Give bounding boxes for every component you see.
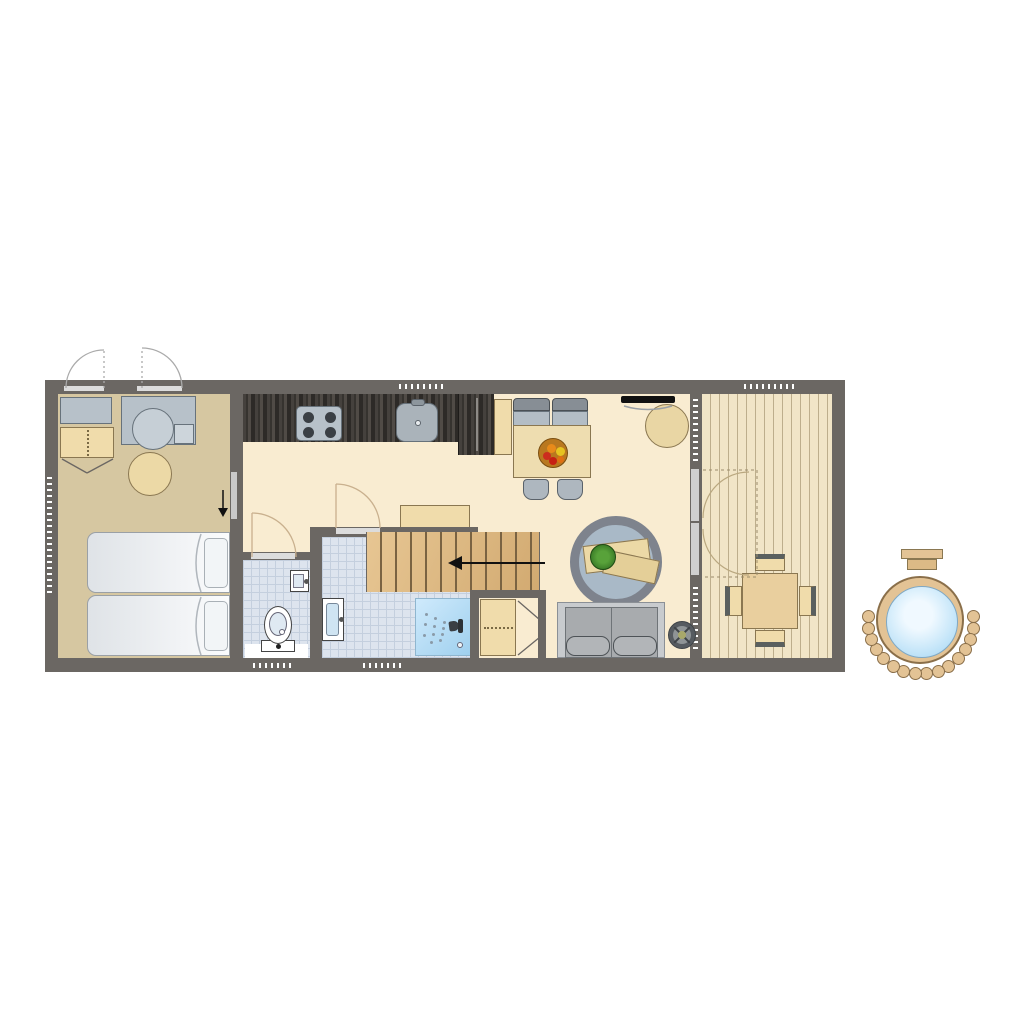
utility-sink [174, 424, 194, 444]
hot-tub-water [886, 586, 958, 658]
hot-tub-bead [862, 610, 875, 623]
exterior-door-opening [64, 386, 104, 391]
shower-handle [458, 619, 463, 633]
hot-tub-step-upper [901, 549, 943, 559]
wardrobe-rail [87, 430, 89, 456]
burner [325, 412, 336, 423]
bench-back-cushion [552, 398, 588, 411]
burner [325, 427, 336, 438]
bench-back-cushion [513, 398, 550, 411]
drain [415, 420, 421, 426]
cabinet-divider [476, 398, 478, 451]
round-side-table [645, 404, 689, 448]
sofa [557, 602, 665, 658]
pillow-2 [204, 601, 228, 651]
sofa-divider [611, 607, 612, 658]
outdoor-chair [799, 586, 816, 616]
bedroom-wardrobe [60, 427, 114, 458]
fruit [556, 447, 565, 456]
wall-bottom [45, 658, 845, 672]
stove-center [678, 631, 686, 639]
tv [621, 396, 675, 403]
outdoor-chair [755, 630, 785, 647]
window-marker-dots [363, 663, 405, 668]
wc-door-opening [251, 553, 295, 559]
exterior-door-opening [137, 386, 182, 391]
shower-drain [457, 642, 463, 648]
toilet [260, 604, 296, 658]
wood-stove [668, 621, 696, 649]
hot-tub-bead [862, 622, 875, 635]
washbasin [322, 598, 344, 641]
fruit-bowl [538, 438, 568, 468]
washing-machine [121, 396, 196, 445]
washbasin-inner [326, 603, 339, 636]
wall-bathroom-right [470, 590, 479, 658]
hall-cabinet [400, 505, 470, 529]
bedroom-stool [128, 452, 172, 496]
tall-cabinet [458, 394, 494, 455]
burner [303, 427, 314, 438]
sofa-cushion [613, 636, 657, 656]
fruit [549, 457, 557, 465]
wc-hand-basin [290, 570, 309, 592]
plant [590, 544, 616, 570]
toilet-button [276, 644, 281, 649]
kitchen-sink [396, 403, 438, 442]
shower [415, 598, 471, 656]
hot-tub-bead [967, 610, 980, 623]
hot-tub-bead [932, 665, 945, 678]
basin-tap [304, 579, 309, 584]
wall-bedroom-hall [230, 394, 243, 658]
hot-tub-bead [909, 667, 922, 680]
wall-niche-right [538, 590, 546, 658]
basin-inner [293, 574, 304, 588]
window-marker-dots [47, 477, 52, 593]
hot-tub-step-lower [907, 559, 937, 570]
dining-chair [557, 479, 583, 500]
wall-niche-top [470, 590, 546, 598]
sofa-cushion [566, 636, 610, 656]
hot-tub-bead [865, 633, 878, 646]
dining-bench-side [494, 399, 512, 455]
stove [296, 406, 342, 441]
bedroom-sliding-door [231, 472, 237, 519]
outdoor-chair [725, 586, 742, 616]
niche-closet [480, 599, 516, 656]
window-marker-dots [399, 384, 447, 389]
toilet-drain [279, 629, 285, 635]
hot-tub-bead [920, 667, 933, 680]
toilet-bowl [264, 606, 292, 644]
washing-machine-drum [132, 408, 174, 450]
glass-door-panel [691, 469, 699, 521]
window-marker-dots [693, 399, 698, 463]
utility-counter [60, 397, 112, 424]
wall-right [832, 380, 845, 672]
dining-chair [523, 479, 549, 500]
faucet [411, 399, 425, 406]
fruit [547, 444, 556, 453]
washbasin-tap [339, 617, 344, 622]
fruit [557, 456, 564, 463]
window-marker-dots [744, 384, 798, 389]
window-marker-dots [253, 663, 295, 668]
floor-plan-canvas [0, 0, 1024, 1024]
glass-door-panel [691, 523, 699, 575]
closet-rail [484, 627, 513, 629]
pillow-1 [204, 538, 228, 588]
burner [303, 412, 314, 423]
hot-tub [876, 576, 964, 664]
staircase [366, 532, 540, 592]
outdoor-chair [755, 554, 785, 571]
wall-wc-bathroom [310, 527, 322, 658]
outdoor-table [742, 573, 798, 629]
